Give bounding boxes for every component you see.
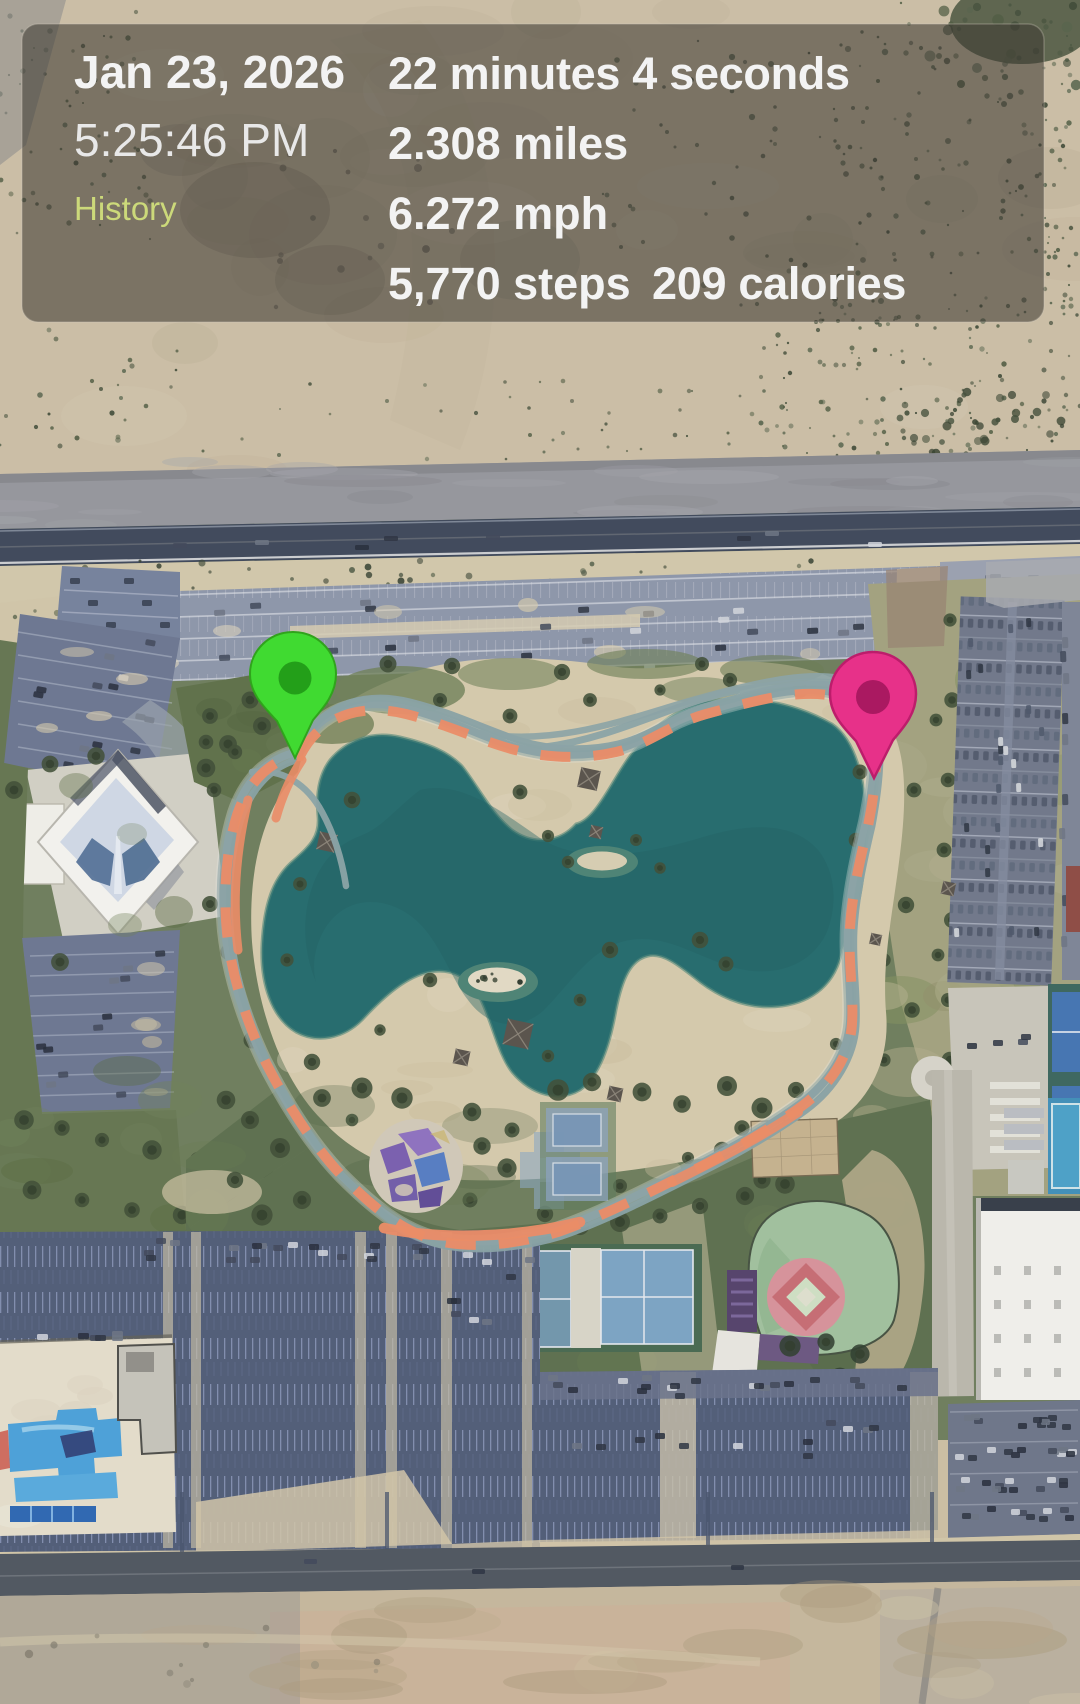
svg-text:209 calories: 209 calories — [652, 258, 906, 309]
svg-text:5:25:46 PM: 5:25:46 PM — [74, 114, 309, 166]
svg-text:5,770 steps: 5,770 steps — [388, 258, 631, 309]
svg-text:Jan 23, 2026: Jan 23, 2026 — [74, 46, 345, 98]
svg-text:6.272 mph: 6.272 mph — [388, 188, 608, 239]
svg-text:22 minutes 4 seconds: 22 minutes 4 seconds — [388, 48, 850, 99]
svg-text:History: History — [74, 190, 177, 227]
svg-text:2.308 miles: 2.308 miles — [388, 118, 628, 169]
